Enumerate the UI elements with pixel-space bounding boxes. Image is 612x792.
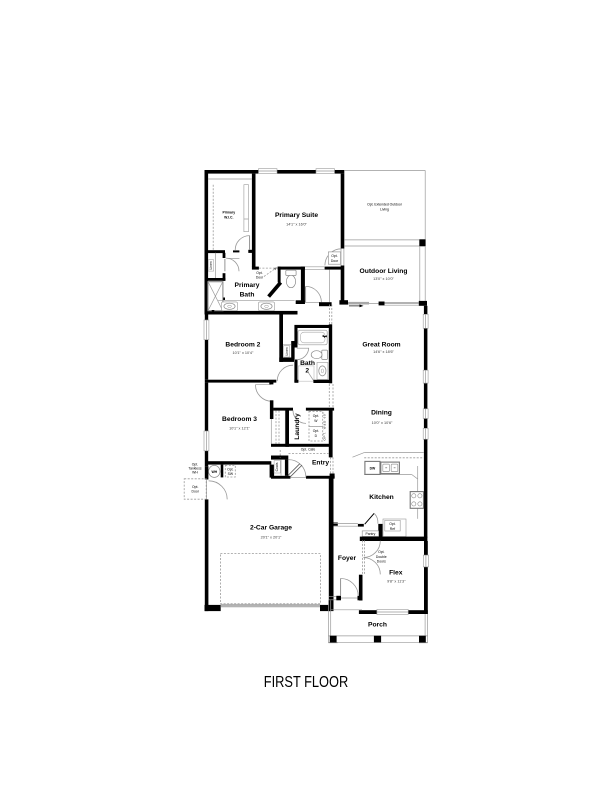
svg-text:9'8" x 11'3": 9'8" x 11'3"	[387, 580, 406, 584]
svg-text:Linen: Linen	[209, 261, 213, 269]
svg-text:Bedroom 2: Bedroom 2	[225, 341, 260, 348]
svg-text:13'0" x 10'0": 13'0" x 10'0"	[373, 277, 394, 281]
svg-text:Door: Door	[256, 276, 264, 280]
svg-text:Opt. Extended Outdoor: Opt. Extended Outdoor	[367, 202, 403, 206]
svg-text:Primary: Primary	[235, 282, 260, 289]
svg-text:Great Room: Great Room	[362, 342, 400, 349]
svg-text:Opt.: Opt.	[331, 254, 337, 258]
svg-text:Primary Suite: Primary Suite	[275, 212, 318, 219]
svg-text:Opt.: Opt.	[313, 414, 319, 418]
svg-text:Pantry: Pantry	[365, 532, 375, 536]
svg-text:14'6" x 18'6": 14'6" x 18'6"	[373, 350, 394, 354]
svg-text:Foyer: Foyer	[338, 555, 357, 562]
svg-text:Dining: Dining	[371, 409, 392, 416]
svg-text:Kitchen: Kitchen	[369, 494, 394, 501]
svg-text:OPT. W&D 60": OPT. W&D 60"	[322, 413, 326, 441]
svg-text:Doors: Doors	[377, 560, 386, 564]
svg-text:Living: Living	[380, 207, 389, 211]
svg-text:FIRST FLOOR: FIRST FLOOR	[264, 674, 349, 691]
svg-text:Opt.: Opt.	[256, 271, 262, 275]
svg-text:Opt.: Opt.	[389, 522, 395, 526]
svg-text:Bedroom 3: Bedroom 3	[222, 416, 257, 423]
svg-text:Linen: Linen	[285, 347, 289, 355]
svg-text:14'1" x 16'0": 14'1" x 16'0"	[286, 223, 307, 227]
svg-text:Opt.: Opt.	[378, 550, 384, 554]
svg-text:Bath: Bath	[240, 292, 255, 299]
svg-text:Opt. Cafe: Opt. Cafe	[301, 447, 316, 451]
svg-text:Porch: Porch	[368, 621, 387, 628]
svg-text:Ref: Ref	[390, 527, 395, 531]
svg-text:10'1" x 12'1": 10'1" x 12'1"	[229, 426, 250, 430]
svg-text:10'0" x 10'6": 10'0" x 10'6"	[372, 421, 393, 425]
svg-text:SW: SW	[228, 472, 234, 476]
svg-text:Laundry: Laundry	[294, 413, 301, 440]
svg-text:Door: Door	[331, 259, 339, 263]
svg-text:W.I.C.: W.I.C.	[224, 215, 233, 219]
svg-text:WH: WH	[211, 470, 217, 474]
svg-text:Double: Double	[376, 555, 387, 559]
svg-text:Door: Door	[192, 490, 200, 494]
svg-text:Flex: Flex	[389, 570, 403, 577]
svg-text:Outdoor Living: Outdoor Living	[360, 268, 408, 275]
svg-text:Opt.: Opt.	[227, 468, 233, 472]
svg-text:Entry: Entry	[312, 459, 329, 466]
svg-text:10'1" x 10'4": 10'1" x 10'4"	[232, 351, 253, 355]
svg-text:Coats: Coats	[275, 462, 279, 471]
svg-text:2-Car Garage: 2-Car Garage	[250, 525, 292, 532]
svg-text:WH: WH	[192, 471, 198, 475]
svg-text:Opt.: Opt.	[313, 429, 319, 433]
svg-text:Primary: Primary	[222, 210, 235, 214]
svg-text:DW: DW	[370, 466, 376, 470]
svg-text:Opt.: Opt.	[192, 485, 198, 489]
svg-text:20'1" x 20'1": 20'1" x 20'1"	[261, 535, 282, 539]
